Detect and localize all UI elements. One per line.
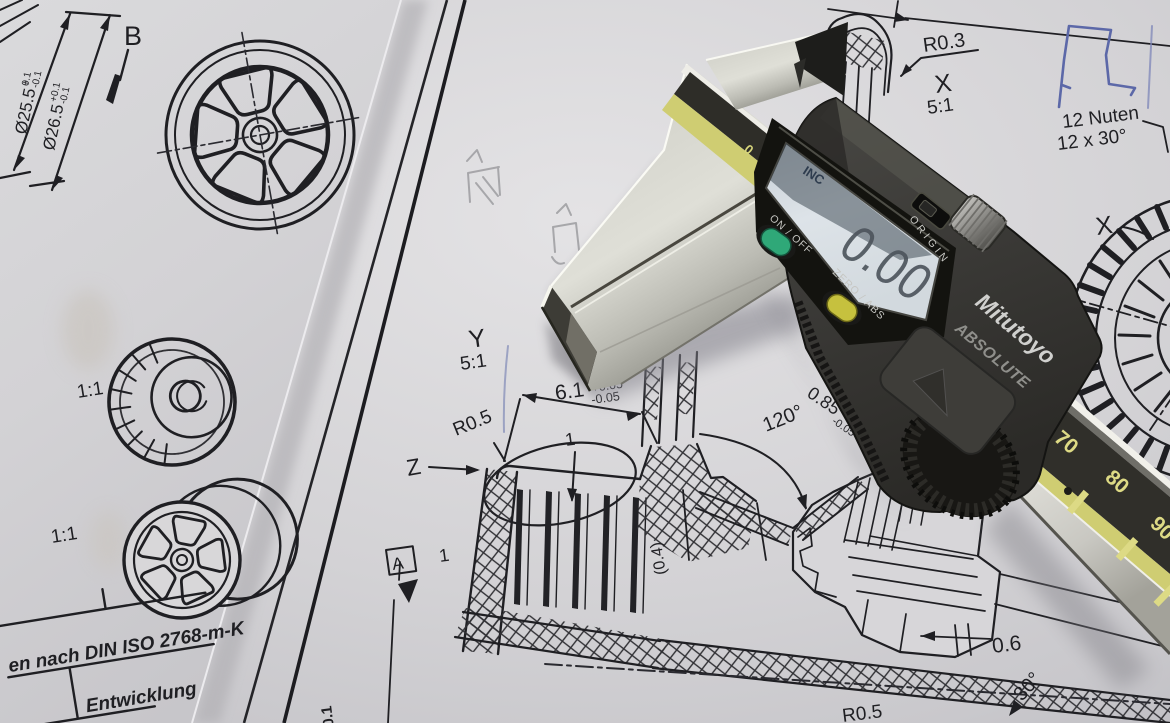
svg-text:1:1: 1:1 — [75, 378, 104, 403]
svg-text:0.6: 0.6 — [991, 632, 1023, 658]
svg-text:0.1: 0.1 — [318, 705, 337, 723]
svg-text:B: B — [124, 21, 142, 51]
svg-text:R0.5: R0.5 — [841, 701, 883, 723]
svg-text:1:1: 1:1 — [49, 523, 78, 548]
svg-text:5:1: 5:1 — [926, 94, 955, 118]
svg-text:5:1: 5:1 — [459, 350, 488, 374]
